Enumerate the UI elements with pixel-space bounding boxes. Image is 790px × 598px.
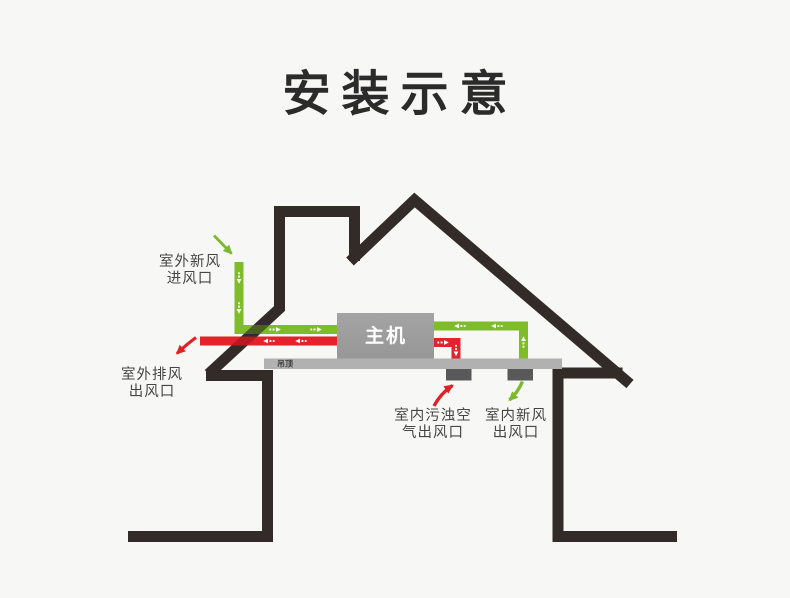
callout-arrow-indoor-exhaust-icon	[434, 386, 453, 407]
callout-text-line: 气出风口	[402, 424, 464, 441]
house-installation-diagram: 吊顶 主机 室外新风 进风口	[0, 0, 790, 598]
callout-arrow-indoor-fresh-icon	[510, 382, 523, 401]
callout-text-line: 进风口	[167, 270, 214, 287]
callout-text-line: 出风口	[129, 383, 176, 400]
callout-outdoor-fresh-intake: 室外新风 进风口	[159, 253, 221, 287]
right-wall-floor-eave	[558, 373, 677, 537]
left-roof-slope-and-chimney-left	[209, 206, 280, 374]
ceiling-label: 吊顶	[277, 360, 293, 369]
callout-text-line: 室内污浊空	[394, 407, 472, 424]
callout-indoor-fresh-outlet: 室内新风 出风口	[485, 407, 547, 441]
callout-text-line: 出风口	[493, 424, 540, 441]
main-unit-label: 主机	[365, 325, 407, 347]
callout-text-line: 室内新风	[485, 407, 547, 424]
callout-text-line: 室外排风	[121, 366, 183, 383]
installation-diagram-page: 安装示意	[0, 0, 790, 598]
callout-arrow-exhaust-outlet-icon	[177, 338, 196, 354]
indoor-supply-vent	[508, 369, 534, 381]
callout-text-line: 室外新风	[159, 253, 221, 270]
callout-indoor-exhaust-outlet: 室内污浊空 气出风口	[394, 407, 472, 441]
ceiling-board	[264, 359, 562, 370]
fresh-air-intake-duct	[239, 262, 342, 330]
callout-arrow-fresh-intake-icon	[214, 236, 232, 254]
indoor-exhaust-vent	[446, 369, 472, 381]
callout-outdoor-exhaust-outlet: 室外排风 出风口	[121, 366, 183, 400]
